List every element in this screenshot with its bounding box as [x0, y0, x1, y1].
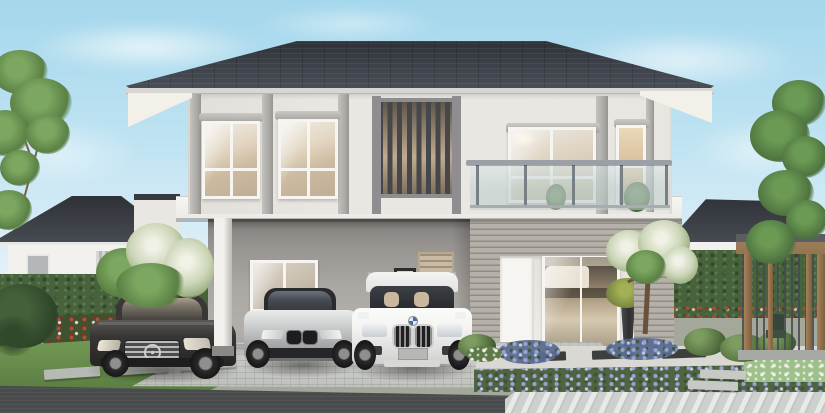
car-mirror: [358, 312, 369, 319]
car-bmw-suv: [352, 272, 472, 374]
railing-post: [572, 164, 575, 208]
car-wheel: [246, 340, 270, 368]
cloud: [260, 6, 440, 42]
shrub-foliage: [116, 263, 186, 308]
tree-foliage: [626, 250, 666, 284]
car-headlight-left: [261, 330, 284, 339]
tree-foliage: [746, 220, 796, 264]
tree-blossoms: [662, 246, 698, 284]
flowering-tree: [598, 220, 698, 340]
railing-post: [524, 164, 527, 208]
eave-soffit-left: [128, 93, 192, 127]
tree-trunk: [643, 282, 651, 334]
front-door: [502, 258, 534, 352]
license-plate: [398, 348, 428, 360]
flowering-shrub: [96, 218, 216, 310]
bmw-kidney-grille: [392, 324, 413, 349]
facade-pilaster: [262, 94, 273, 214]
tree-foliage: [0, 150, 40, 186]
balcony-glass-railing: [470, 164, 670, 210]
stepping-stone: [700, 369, 746, 380]
right-edge-tree: [742, 80, 825, 270]
pavilion-floor: [738, 350, 825, 360]
bmw-kidney-grille: [413, 324, 434, 349]
car-hood-highlight: [98, 322, 228, 325]
car-bumper-intake: [260, 348, 342, 358]
railing-post: [665, 164, 668, 208]
louvre-slats: [378, 102, 455, 194]
carport-column: [214, 218, 232, 348]
louvre-frame-post: [452, 96, 461, 214]
railing-post: [476, 164, 479, 208]
balcony-handrail: [466, 160, 672, 165]
stepping-stone: [688, 380, 738, 391]
car-headlight-right: [437, 324, 462, 337]
car-headlight-right: [319, 330, 342, 339]
car-seat: [414, 292, 429, 307]
bedroom-window-right: [278, 119, 338, 199]
roof-fascia: [126, 88, 714, 94]
bmw-kidney-grille: [286, 330, 302, 345]
car-bmw-coupe: [244, 288, 358, 372]
exterior-render-scene: [0, 0, 825, 413]
car-headlight-left: [362, 324, 387, 337]
vertical-louvre-screen: [378, 98, 455, 198]
bedroom-window-left: [202, 121, 260, 199]
facade-pilaster: [190, 94, 201, 214]
car-seat: [384, 292, 399, 307]
white-outbuilding-roof-edge: [134, 194, 180, 200]
window-reflection: [205, 124, 257, 196]
louvre-frame-post: [372, 96, 381, 214]
bmw-kidney-grille: [302, 330, 318, 345]
car-wheel: [354, 340, 376, 370]
car-wheel: [102, 350, 129, 377]
tree-foliage: [26, 114, 70, 154]
car-mirror: [455, 312, 466, 319]
tree-foliage: [0, 190, 32, 230]
balcony-bottom-rail: [470, 205, 670, 208]
carport-column-base: [212, 346, 234, 356]
skid-plate: [384, 360, 440, 367]
window-reflection: [281, 122, 335, 196]
left-edge-tree: [0, 50, 88, 240]
railing-post: [620, 164, 623, 208]
